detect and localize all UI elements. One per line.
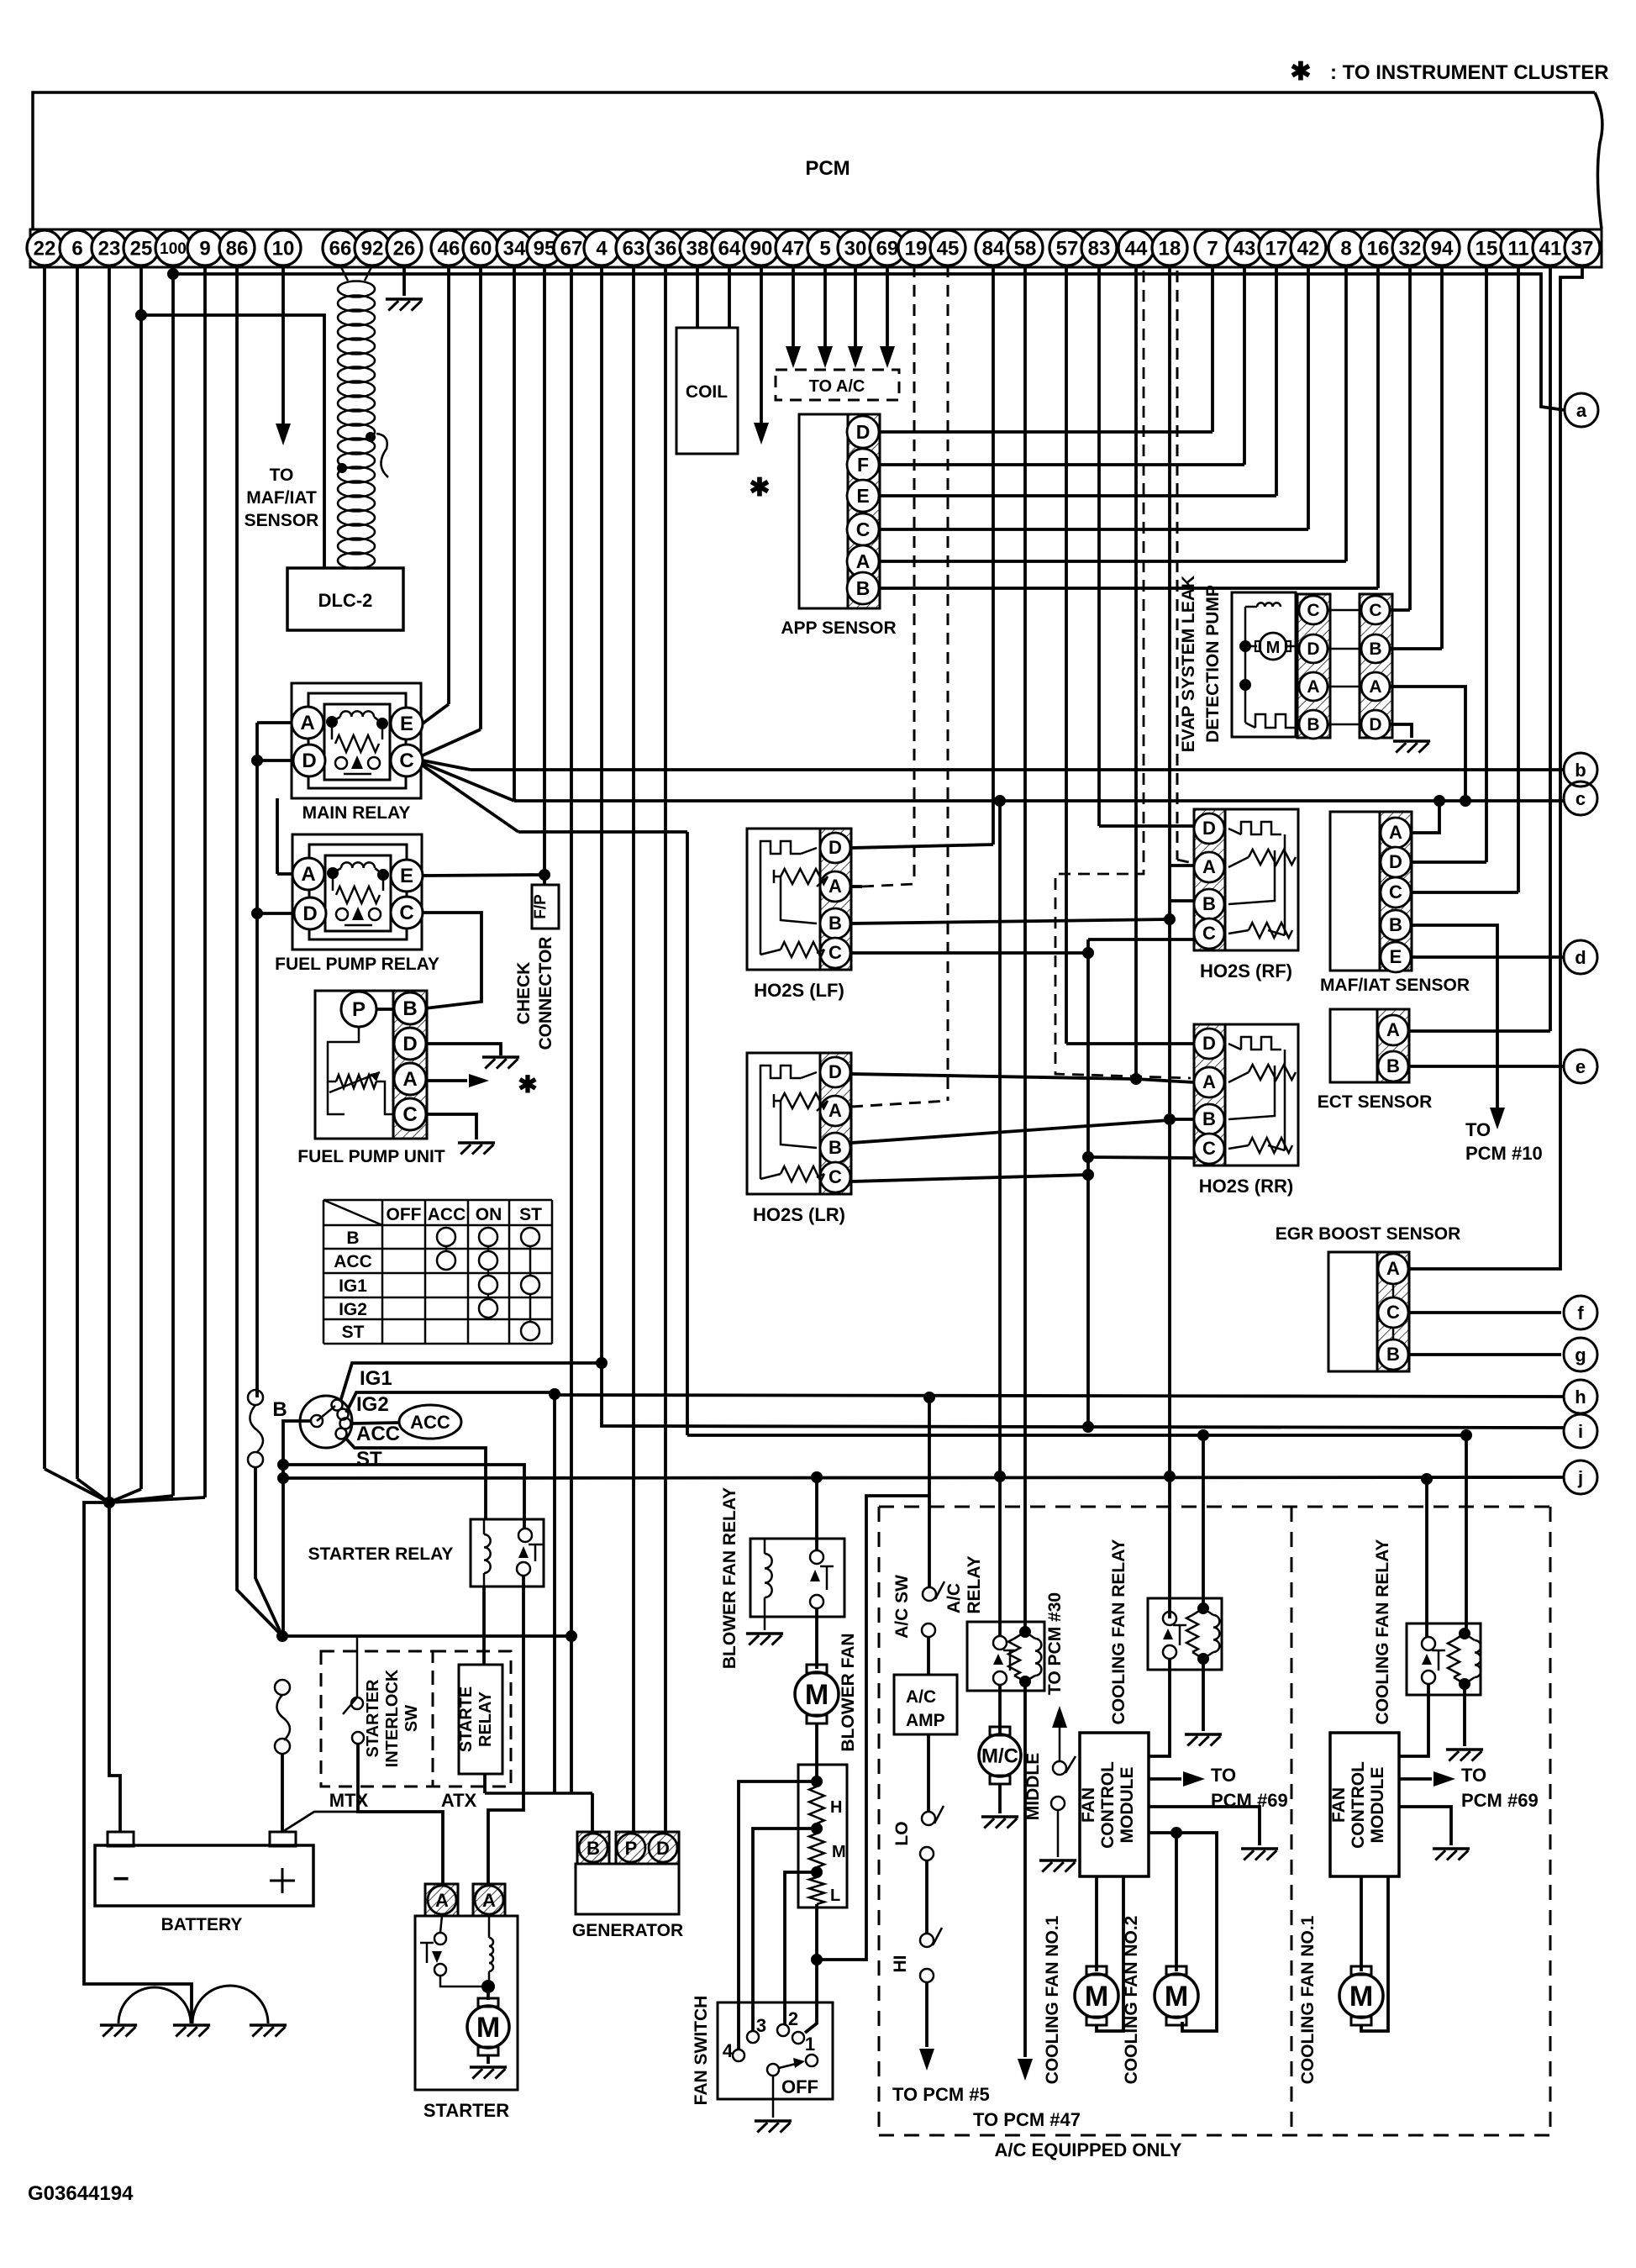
svg-text:TO: TO (1461, 1765, 1486, 1786)
svg-text:PCM: PCM (805, 157, 850, 180)
svg-text:63: 63 (623, 238, 645, 260)
svg-text:43: 43 (1234, 238, 1256, 260)
svg-text:23: 23 (98, 238, 121, 260)
svg-text:f: f (1577, 1302, 1584, 1323)
svg-text:A: A (829, 876, 842, 897)
svg-text:B: B (346, 1229, 359, 1248)
svg-text:MIDDLE: MIDDLE (1023, 1753, 1043, 1821)
svg-text:DETECTION PUMP: DETECTION PUMP (1203, 585, 1223, 743)
svg-text:C: C (1307, 601, 1319, 620)
svg-text:BLOWER FAN RELAY: BLOWER FAN RELAY (720, 1487, 739, 1669)
svg-text:B: B (1307, 715, 1319, 734)
svg-text:4: 4 (723, 2040, 734, 2061)
svg-text:TO: TO (270, 466, 294, 485)
svg-text:9: 9 (199, 238, 210, 260)
svg-text:86: 86 (226, 238, 249, 260)
svg-text:MODULE: MODULE (1368, 1767, 1387, 1844)
svg-text:TO PCM #30: TO PCM #30 (1045, 1592, 1065, 1695)
svg-text:60: 60 (470, 238, 492, 260)
svg-text:D: D (1202, 1033, 1216, 1054)
svg-text:LO: LO (892, 1821, 912, 1845)
svg-text:26: 26 (393, 238, 416, 260)
svg-text:TO PCM #5: TO PCM #5 (892, 2084, 990, 2105)
svg-text:D: D (402, 1033, 417, 1055)
svg-text:HI: HI (891, 1955, 910, 1973)
svg-text:A: A (1386, 1258, 1400, 1279)
svg-text:COOLING FAN RELAY: COOLING FAN RELAY (1109, 1539, 1128, 1725)
svg-text:36: 36 (655, 238, 677, 260)
svg-text:IG1: IG1 (339, 1276, 367, 1296)
svg-text:✱: ✱ (749, 474, 770, 502)
svg-text:STARTE: STARTE (457, 1687, 476, 1753)
svg-text:PCM #10: PCM #10 (1465, 1143, 1543, 1164)
svg-text:34: 34 (503, 238, 526, 260)
svg-text:IG2: IG2 (339, 1300, 367, 1319)
svg-text:D: D (1369, 715, 1381, 734)
svg-text:j: j (1577, 1467, 1583, 1488)
svg-text:45: 45 (937, 238, 960, 260)
svg-text:1: 1 (805, 2034, 815, 2055)
svg-text:A: A (1202, 1071, 1216, 1092)
svg-text:90: 90 (750, 238, 773, 260)
svg-text:ECT SENSOR: ECT SENSOR (1318, 1092, 1433, 1112)
svg-text:E: E (1390, 946, 1402, 967)
svg-text:B: B (1386, 1055, 1400, 1076)
svg-text:B: B (1369, 639, 1381, 659)
svg-text:M: M (832, 1843, 846, 1861)
svg-text:38: 38 (686, 238, 709, 260)
svg-text:COIL: COIL (686, 382, 728, 402)
svg-text:EVAP SYSTEM LEAK: EVAP SYSTEM LEAK (1179, 576, 1198, 752)
svg-text:HO2S (RF): HO2S (RF) (1200, 960, 1292, 981)
svg-text:MAIN RELAY: MAIN RELAY (302, 803, 411, 823)
svg-text:BLOWER FAN: BLOWER FAN (839, 1633, 858, 1751)
svg-text:M: M (1165, 1981, 1188, 2013)
svg-text:MODULE: MODULE (1118, 1767, 1137, 1844)
svg-text:32: 32 (1399, 238, 1422, 260)
svg-text:c: c (1576, 788, 1586, 809)
svg-text:HO2S (LR): HO2S (LR) (753, 1204, 845, 1225)
svg-text:A: A (1202, 856, 1216, 877)
svg-text:D: D (656, 1838, 670, 1859)
svg-text:25: 25 (130, 238, 153, 260)
svg-text:INTERLOCK: INTERLOCK (383, 1669, 402, 1767)
svg-text:COOLING FAN RELAY: COOLING FAN RELAY (1373, 1539, 1392, 1725)
svg-text:D: D (856, 421, 871, 443)
svg-text:MTX: MTX (329, 1790, 369, 1811)
svg-text:2: 2 (788, 2008, 798, 2029)
svg-text:47: 47 (782, 238, 805, 260)
svg-text:RELAY: RELAY (965, 1555, 984, 1613)
svg-text:L: L (830, 1886, 840, 1905)
svg-text:ATX: ATX (441, 1790, 477, 1811)
svg-text:66: 66 (329, 238, 352, 260)
svg-text:COOLING FAN NO.1: COOLING FAN NO.1 (1043, 1915, 1062, 2084)
svg-text:C: C (856, 518, 871, 540)
svg-text:b: b (1575, 760, 1586, 781)
svg-text:F/P: F/P (532, 894, 550, 919)
svg-text:A: A (829, 1100, 842, 1121)
svg-text:CHECK: CHECK (514, 962, 534, 1025)
svg-text:84: 84 (982, 238, 1005, 260)
svg-text:MAF/IAT SENSOR: MAF/IAT SENSOR (1320, 976, 1470, 995)
svg-text:COOLING FAN NO.2: COOLING FAN NO.2 (1122, 1916, 1141, 2085)
svg-text:E: E (400, 865, 413, 887)
svg-text:44: 44 (1125, 238, 1148, 260)
svg-text:D: D (1307, 639, 1319, 659)
svg-text:95: 95 (534, 238, 556, 260)
svg-text:A: A (1386, 1019, 1400, 1040)
svg-text:ON: ON (476, 1205, 502, 1224)
svg-text:A/C SW: A/C SW (892, 1575, 912, 1639)
svg-text:C: C (829, 1166, 842, 1187)
svg-text:4: 4 (596, 238, 608, 260)
svg-text:A: A (402, 1068, 417, 1091)
svg-text:M/C: M/C (981, 1744, 1018, 1767)
svg-text:h: h (1575, 1387, 1586, 1408)
svg-text:69: 69 (876, 238, 899, 260)
svg-text:C: C (829, 942, 842, 963)
svg-text:C: C (402, 1103, 417, 1126)
svg-text:TO: TO (1465, 1119, 1491, 1140)
svg-text:22: 22 (34, 238, 56, 260)
svg-text:IG2: IG2 (356, 1393, 389, 1416)
svg-text:D: D (302, 750, 316, 772)
svg-text:ACC: ACC (334, 1252, 372, 1271)
svg-text:41: 41 (1539, 238, 1562, 260)
svg-text:A/C: A/C (944, 1583, 964, 1613)
svg-text:M: M (1085, 1981, 1108, 2013)
svg-text:CONNECTOR: CONNECTOR (536, 937, 555, 1050)
svg-text:PCM #69: PCM #69 (1461, 1790, 1539, 1811)
svg-text:B: B (1386, 1344, 1400, 1365)
svg-text:30: 30 (844, 238, 867, 260)
svg-text:G03644194: G03644194 (28, 2182, 134, 2205)
svg-text:C: C (1386, 1302, 1400, 1323)
svg-text:C: C (1202, 1138, 1216, 1159)
svg-text:A: A (482, 1890, 496, 1911)
svg-text:g: g (1575, 1344, 1586, 1366)
svg-text:A: A (300, 712, 314, 734)
svg-text:B: B (272, 1398, 287, 1421)
svg-text:M: M (1266, 639, 1281, 657)
svg-text:B: B (1202, 1108, 1216, 1129)
svg-text:A: A (435, 1890, 449, 1911)
svg-text:ACC: ACC (410, 1412, 450, 1433)
svg-text:10: 10 (272, 238, 295, 260)
svg-text:B: B (1202, 893, 1216, 914)
svg-text:GENERATOR: GENERATOR (572, 1921, 683, 1940)
svg-text:B: B (1389, 914, 1402, 935)
svg-text:FAN SWITCH: FAN SWITCH (692, 1996, 711, 2106)
svg-text:ST: ST (519, 1205, 542, 1224)
svg-text:FUEL PUMP UNIT: FUEL PUMP UNIT (297, 1147, 445, 1166)
svg-text:EGR BOOST SENSOR: EGR BOOST SENSOR (1276, 1224, 1461, 1244)
svg-text:ACC: ACC (356, 1423, 400, 1445)
svg-text:OFF: OFF (781, 2076, 818, 2097)
svg-text:TO A/C: TO A/C (809, 377, 865, 396)
svg-text:94: 94 (1431, 238, 1454, 260)
svg-text:83: 83 (1088, 238, 1111, 260)
svg-text:B: B (402, 997, 417, 1020)
svg-text:18: 18 (1159, 238, 1181, 260)
svg-text:e: e (1576, 1056, 1586, 1077)
svg-text:C: C (1202, 923, 1216, 944)
svg-text:MAF/IAT: MAF/IAT (246, 488, 317, 508)
svg-text:A/C: A/C (906, 1687, 936, 1707)
svg-text:C: C (399, 902, 413, 924)
svg-text:✱: ✱ (1290, 58, 1311, 86)
svg-text:P: P (625, 1838, 638, 1859)
svg-text:M: M (805, 1679, 829, 1711)
svg-text:B: B (829, 913, 842, 934)
svg-text:HO2S (LF): HO2S (LF) (754, 980, 844, 1001)
svg-text:✱: ✱ (518, 1071, 537, 1097)
svg-text:A: A (856, 550, 871, 572)
svg-text:M: M (476, 2012, 500, 2044)
svg-text:11: 11 (1507, 238, 1528, 260)
svg-text:E: E (856, 485, 869, 507)
svg-text:F: F (857, 454, 869, 476)
svg-text:A/C EQUIPPED ONLY: A/C EQUIPPED ONLY (995, 2139, 1182, 2160)
svg-text:CONTROL: CONTROL (1098, 1761, 1118, 1849)
svg-text:92: 92 (361, 238, 384, 260)
svg-text:H: H (830, 1798, 842, 1817)
svg-text:17: 17 (1265, 238, 1288, 260)
svg-text:STARTER: STARTER (364, 1679, 382, 1758)
svg-text:RELAY: RELAY (476, 1691, 495, 1747)
svg-text:A: A (1389, 822, 1402, 843)
svg-text:d: d (1575, 947, 1586, 968)
svg-text:57: 57 (1056, 238, 1079, 260)
svg-text:67: 67 (560, 238, 583, 260)
svg-text:6: 6 (71, 238, 82, 260)
svg-text:A: A (301, 863, 315, 886)
svg-text:D: D (829, 837, 842, 858)
svg-text:TO: TO (1211, 1765, 1236, 1786)
svg-text:D: D (1202, 818, 1216, 839)
svg-text:19: 19 (905, 238, 928, 260)
svg-text:B: B (829, 1137, 842, 1158)
svg-text:D: D (1389, 851, 1402, 872)
svg-text:M: M (1349, 1981, 1373, 2013)
svg-text:D: D (829, 1061, 842, 1082)
svg-text:100: 100 (160, 240, 187, 258)
svg-text:15: 15 (1476, 238, 1498, 260)
svg-text:64: 64 (718, 238, 741, 260)
svg-text:42: 42 (1297, 238, 1320, 260)
svg-text:58: 58 (1014, 238, 1037, 260)
svg-text:i: i (1578, 1421, 1583, 1442)
svg-text:SENSOR: SENSOR (245, 511, 319, 530)
svg-text:STARTER RELAY: STARTER RELAY (308, 1544, 454, 1564)
svg-text:APP SENSOR: APP SENSOR (781, 618, 896, 638)
svg-text:37: 37 (1571, 238, 1594, 260)
svg-text:E: E (400, 713, 413, 735)
svg-text:16: 16 (1367, 238, 1390, 260)
svg-text:STARTER: STARTER (423, 2100, 509, 2121)
svg-text:8: 8 (1340, 238, 1351, 260)
svg-text:OFF: OFF (387, 1205, 422, 1224)
svg-text:B: B (587, 1838, 600, 1859)
svg-text:TO PCM #47: TO PCM #47 (973, 2109, 1081, 2130)
svg-text:HO2S (RR): HO2S (RR) (1199, 1176, 1293, 1197)
svg-text:FAN: FAN (1329, 1787, 1349, 1823)
svg-text:C: C (399, 750, 413, 772)
svg-text:: TO INSTRUMENT CLUSTER: : TO INSTRUMENT CLUSTER (1330, 61, 1609, 84)
svg-text:a: a (1576, 400, 1587, 421)
svg-text:5: 5 (819, 238, 830, 260)
svg-text:FAN: FAN (1079, 1787, 1098, 1823)
svg-text:FUEL PUMP RELAY: FUEL PUMP RELAY (275, 955, 439, 974)
svg-text:DLC-2: DLC-2 (318, 590, 373, 611)
svg-text:CONTROL: CONTROL (1349, 1761, 1368, 1849)
svg-text:ST: ST (356, 1448, 382, 1471)
svg-text:B: B (856, 577, 871, 599)
svg-text:ST: ST (342, 1323, 365, 1342)
svg-text:SW: SW (402, 1705, 421, 1732)
svg-text:P: P (352, 998, 366, 1021)
svg-text:ACC: ACC (428, 1205, 466, 1224)
svg-text:A: A (1369, 677, 1381, 697)
svg-text:AMP: AMP (906, 1711, 945, 1730)
svg-text:3: 3 (756, 2015, 766, 2036)
svg-text:D: D (302, 902, 317, 925)
svg-text:BATTERY: BATTERY (161, 1915, 243, 1934)
svg-text:7: 7 (1207, 238, 1218, 260)
svg-text:−: − (113, 1863, 129, 1895)
svg-text:A: A (1307, 677, 1319, 697)
svg-text:IG1: IG1 (360, 1367, 392, 1390)
svg-text:46: 46 (438, 238, 460, 260)
svg-text:C: C (1369, 601, 1381, 620)
svg-text:C: C (1389, 881, 1402, 902)
svg-text:COOLING FAN NO.1: COOLING FAN NO.1 (1298, 1915, 1318, 2084)
